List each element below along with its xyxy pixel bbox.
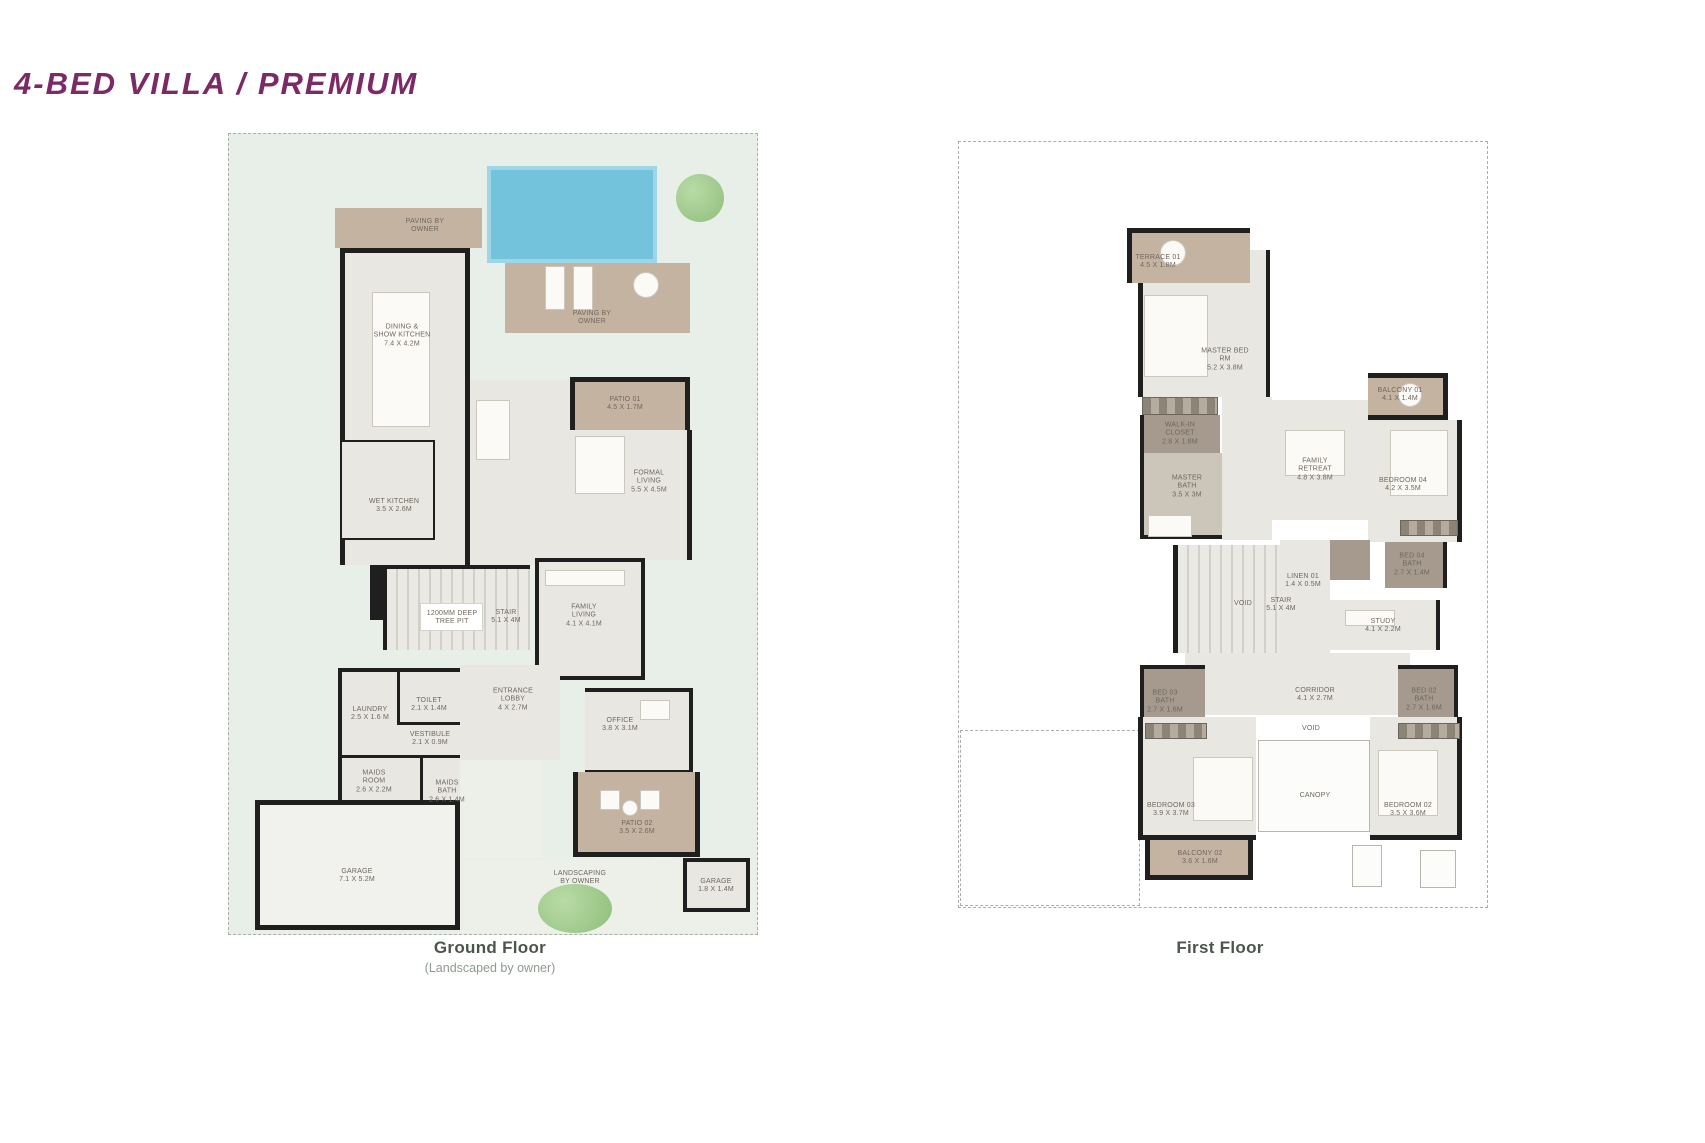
room-label: VOID	[1234, 600, 1252, 608]
bed	[1144, 295, 1208, 377]
room-label: BALCONY 02 3.6 X 1.6M	[1177, 850, 1222, 867]
room-label: BALCONY 01 4.1 X 1.4M	[1377, 387, 1422, 404]
room-label: BED 02 BATH 2.7 X 1.6M	[1406, 688, 1442, 713]
wardrobe	[1398, 723, 1460, 739]
bed	[1193, 757, 1253, 821]
canopy	[1258, 740, 1370, 832]
bathtub	[1148, 515, 1192, 537]
room-label: BEDROOM 03 3.9 X 3.7M	[1147, 802, 1195, 819]
toilet	[1330, 540, 1370, 580]
first-floor-caption-title: First Floor	[1176, 938, 1263, 958]
ground-floor-caption-subtitle: (Landscaped by owner)	[425, 961, 556, 975]
first-floor-caption: First Floor	[1176, 938, 1263, 958]
room-label: BED 04 BATH 2.7 X 1.4M	[1394, 553, 1430, 578]
room-label: LINEN 01 1.4 X 0.5M	[1285, 573, 1321, 590]
wardrobe	[1400, 520, 1458, 536]
ground-floor-caption-title: Ground Floor	[425, 938, 556, 958]
utility-box	[1420, 850, 1456, 888]
room-label: BED 03 BATH 2.7 X 1.6M	[1147, 690, 1183, 715]
master-col	[1250, 250, 1270, 397]
utility-box	[1352, 845, 1382, 887]
room-label: VOID	[1302, 725, 1320, 733]
room-label: WALK-IN CLOSET 2.8 X 1.8M	[1162, 422, 1198, 447]
room-label: MASTER BED RM 5.2 X 3.8M	[1201, 348, 1249, 373]
room-label: FAMILY RETREAT 4.8 X 3.8M	[1297, 458, 1333, 483]
room-label: STAIR 5.1 X 4M	[1266, 597, 1296, 614]
stage: 4-BED VILLA / PREMIUM PAVING BY OWNERDIN…	[0, 0, 1705, 1143]
wardrobe	[1145, 723, 1207, 739]
first-floor-plan: TERRACE 01 4.5 X 1.8MMASTER BED RM 5.2 X…	[0, 0, 1705, 1143]
walkin-shelf	[1142, 397, 1218, 415]
room-label: CANOPY	[1300, 792, 1331, 800]
room-label: CORRIDOR 4.1 X 2.7M	[1295, 687, 1335, 704]
stair	[1173, 545, 1280, 653]
ground-floor-caption: Ground Floor (Landscaped by owner)	[425, 938, 556, 975]
room-label: BEDROOM 02 3.5 X 3.6M	[1384, 802, 1432, 819]
corridor	[1185, 653, 1410, 715]
hallway	[1222, 397, 1272, 540]
room-label: STUDY 4.1 X 2.2M	[1365, 618, 1401, 635]
room-label: TERRACE 01 4.5 X 1.8M	[1135, 254, 1180, 271]
room-label: BEDROOM 04 4.2 X 3.5M	[1379, 477, 1427, 494]
garden-box	[960, 730, 1140, 906]
room-label: MASTER BATH 3.5 X 3M	[1172, 475, 1202, 500]
